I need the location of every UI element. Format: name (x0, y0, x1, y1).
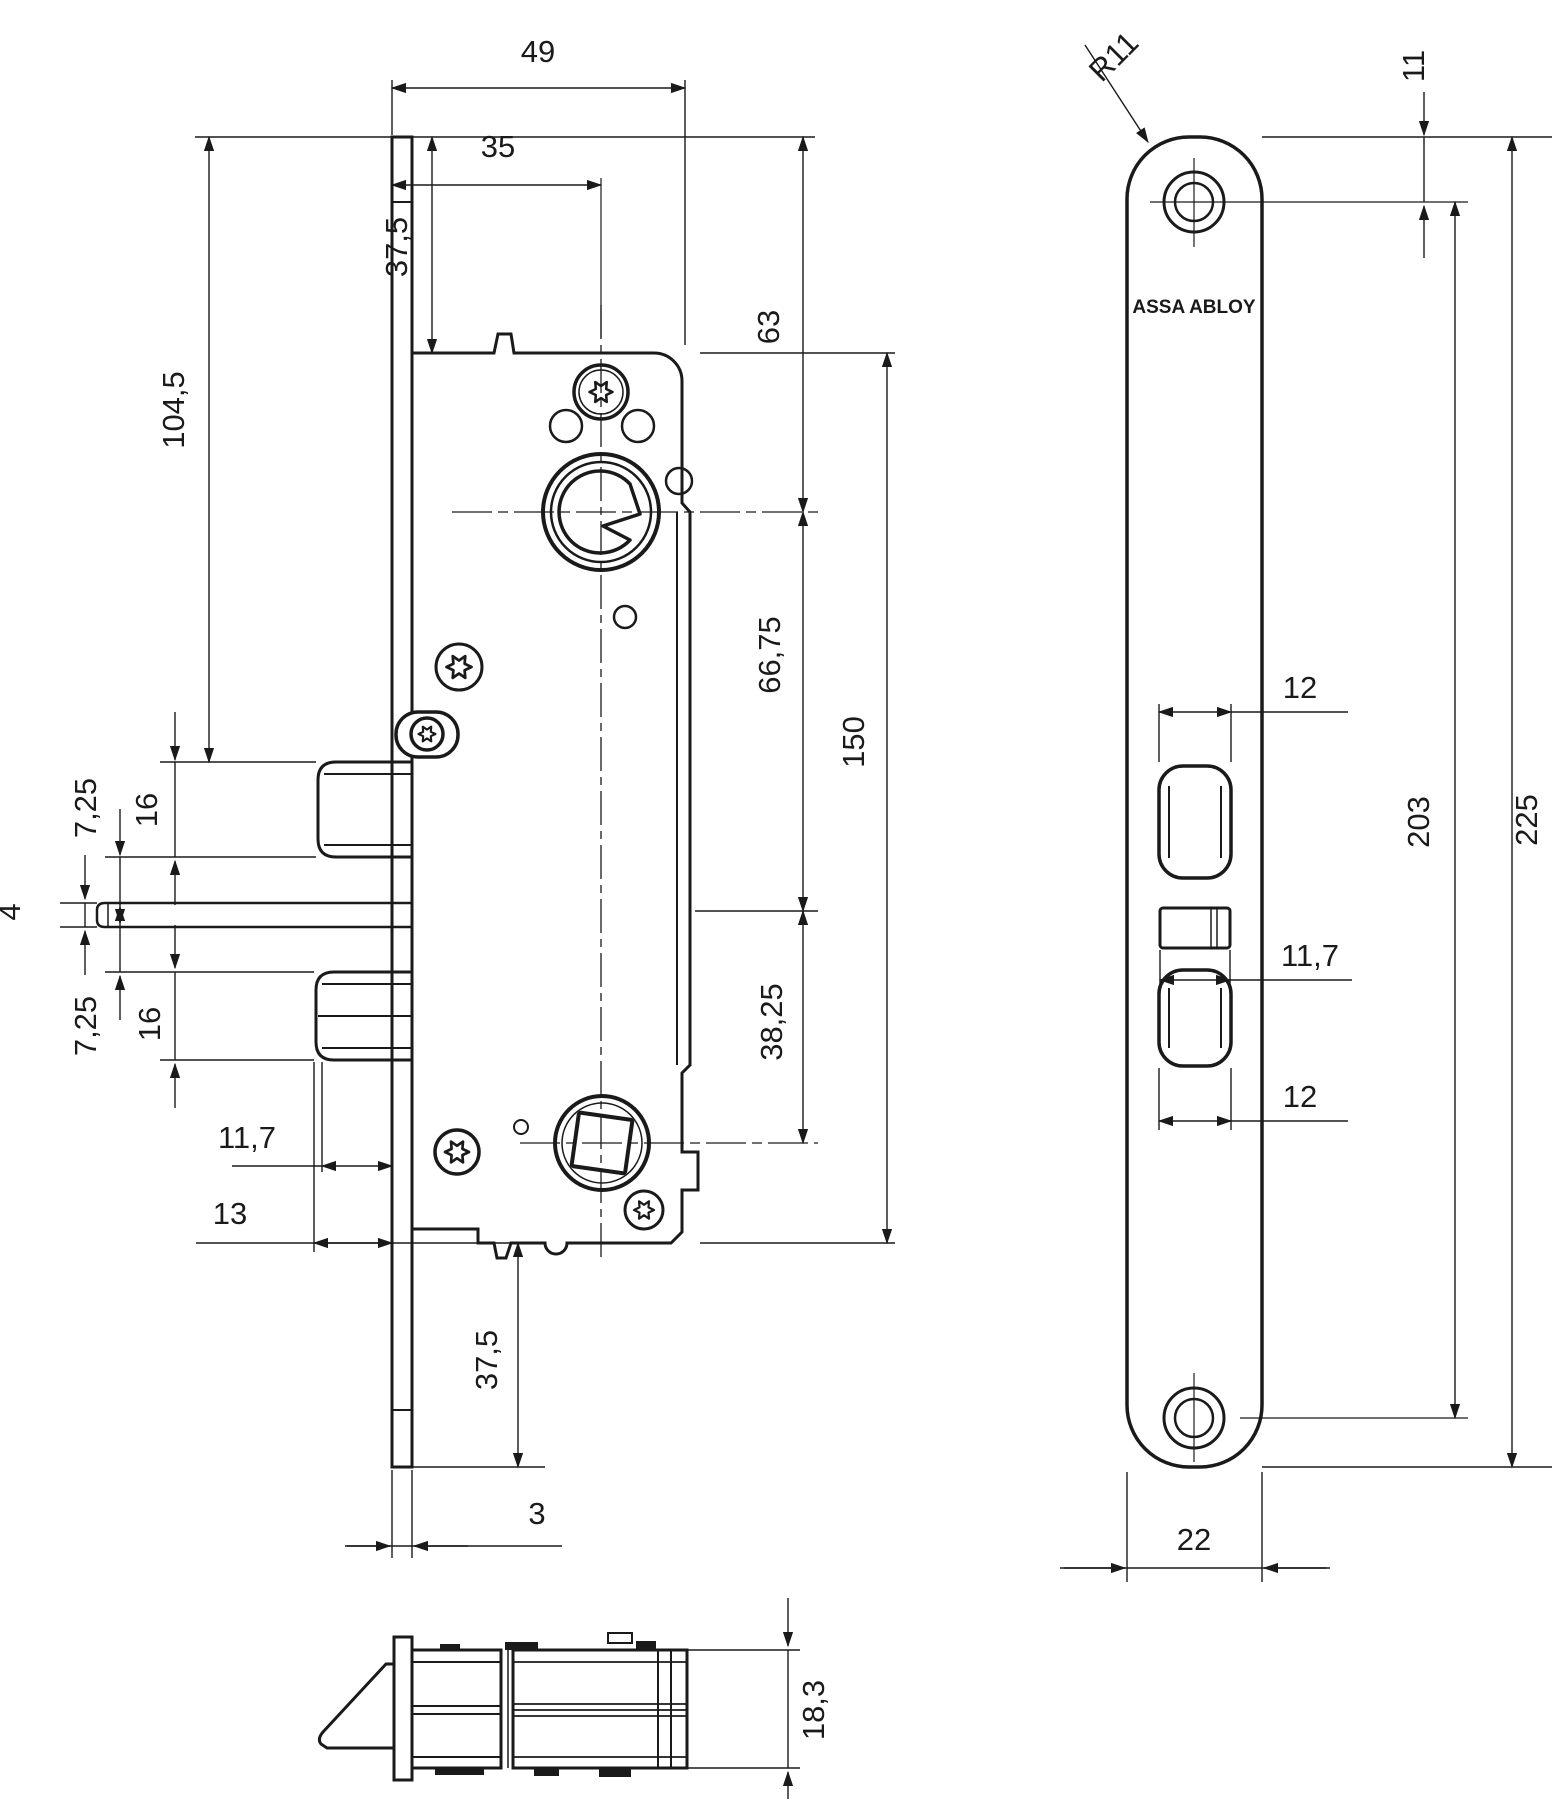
dim-label-protrusion-outer: 13 (213, 1196, 247, 1231)
dim-label-gap-lower: 7,25 (68, 996, 103, 1056)
faceplate-side (392, 137, 412, 1467)
side-view (97, 137, 818, 1467)
dim-label-bolt-width-lower: 12 (1283, 1079, 1317, 1114)
dim-label-plate-width: 22 (1177, 1522, 1211, 1557)
dim-label-corner-radius: R11 (1082, 25, 1145, 88)
dim-label-top-offset: 37,5 (379, 217, 414, 277)
faceplate-front (1127, 137, 1262, 1467)
lock-case-outline (412, 334, 698, 1258)
auxiliary-bolt-bar (97, 903, 412, 927)
dim-label-gap-upper: 7,25 (68, 778, 103, 838)
dim-label-bolt-lower: 16 (132, 1007, 167, 1041)
faceplate-top-view (394, 1637, 412, 1780)
screw-slotted-icon (396, 712, 458, 757)
front-view (1127, 137, 1262, 1467)
dim-label-case-height: 150 (836, 716, 871, 768)
dim-label-backset: 35 (481, 129, 515, 164)
dim-label-protrusion-inner: 11,7 (218, 1120, 276, 1155)
dim-label-hole-top-offset: 11 (1396, 50, 1431, 82)
top-view-dimensions (687, 1598, 800, 1799)
dim-label-hole-spacing: 203 (1401, 796, 1436, 848)
dim-label-cylinder-offset: 63 (751, 310, 786, 344)
dim-label-center-distance: 66,75 (752, 616, 787, 694)
dim-label-case-depth: 18,3 (796, 1680, 831, 1740)
technical-drawing: 49 35 37,5 104,5 63 66,75 150 38,25 7,25… (0, 0, 1555, 1800)
dim-label-bar-thickness: 4 (0, 903, 27, 920)
case-body-top-view (513, 1633, 687, 1768)
dim-label-plate-thickness: 3 (528, 1496, 545, 1531)
latch-bolt-top-view (319, 1664, 394, 1748)
drawing-sheet: 49 35 37,5 104,5 63 66,75 150 38,25 7,25… (0, 0, 1555, 1800)
dim-label-upper-height: 104,5 (156, 371, 191, 449)
dim-label-bottom-offset: 37,5 (469, 1330, 504, 1390)
dim-label-slot-width: 11,7 (1281, 938, 1339, 973)
case-front-top-view (412, 1650, 513, 1768)
dim-label-bolt-upper: 16 (129, 793, 164, 827)
dim-label-total-width: 49 (521, 34, 555, 69)
dim-label-plate-height: 225 (1509, 794, 1544, 846)
brand-logo: ASSA ABLOY (1132, 297, 1255, 318)
top-view (319, 1633, 687, 1780)
dim-label-spindle-offset: 38,25 (754, 983, 789, 1061)
dim-label-bolt-width-upper: 12 (1283, 670, 1317, 705)
